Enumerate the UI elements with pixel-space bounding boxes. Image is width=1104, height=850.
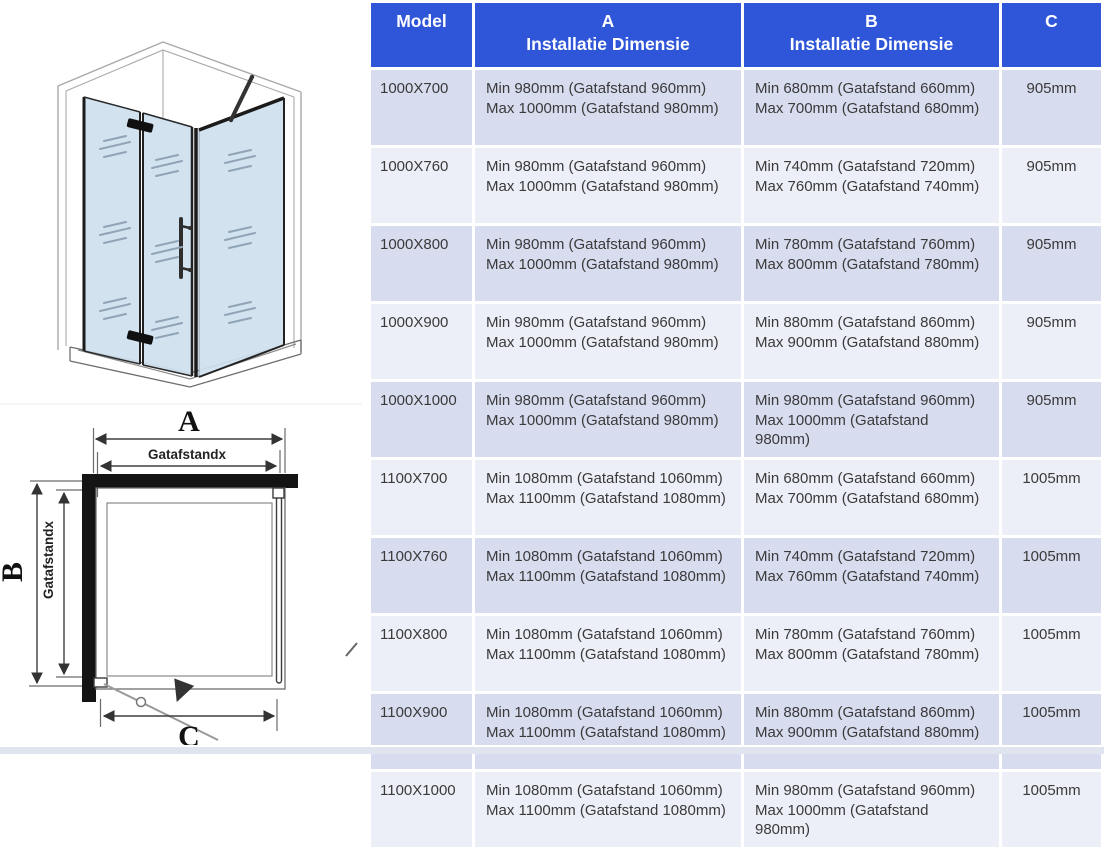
dim-line: Min 780mm (Gatafstand 760mm): [755, 235, 998, 255]
table-row: 1100X700 Min 1080mm (Gatafstand 1060mm) …: [371, 460, 1101, 535]
model-cell: 1100X1000: [371, 772, 472, 847]
header-b-sub: Installatie Dimensie: [746, 33, 997, 56]
shower-3d-view: [58, 42, 301, 387]
table-row: 1000X760 Min 980mm (Gatafstand 960mm) Ma…: [371, 148, 1101, 223]
shower-diagrams-svg: A Gatafstandx B: [0, 0, 368, 754]
header-a-sub: Installatie Dimensie: [477, 33, 739, 56]
dimension-ticks: [29, 428, 285, 731]
dim-a-cell: Min 980mm (Gatafstand 960mm) Max 1000mm …: [475, 382, 741, 457]
dim-a-cell: Min 980mm (Gatafstand 960mm) Max 1000mm …: [475, 148, 741, 223]
model-cell: 1000X760: [371, 148, 472, 223]
header-b-letter: B: [746, 10, 997, 33]
dim-b-cell: Min 740mm (Gatafstand 720mm) Max 760mm (…: [744, 538, 999, 613]
dim-b-cell: Min 780mm (Gatafstand 760mm) Max 800mm (…: [744, 616, 999, 691]
model-cell: 1000X900: [371, 304, 472, 379]
dim-a-cell: Min 1080mm (Gatafstand 1060mm) Max 1100m…: [475, 694, 741, 769]
dim-line: Min 980mm (Gatafstand 960mm): [486, 79, 740, 99]
product-spec-page: A Gatafstandx B: [0, 0, 1104, 754]
plan-side-panel: [277, 497, 282, 683]
page-bottom-strip: [0, 745, 1104, 754]
dim-line: Min 980mm (Gatafstand 960mm): [486, 391, 740, 411]
dim-line: Min 740mm (Gatafstand 720mm): [755, 157, 998, 177]
plan-wall-left: [82, 474, 96, 702]
dim-line: Max 1100mm (Gatafstand 1080mm): [486, 801, 740, 821]
model-cell: 1100X760: [371, 538, 472, 613]
table-row: 1100X900 Min 1080mm (Gatafstand 1060mm) …: [371, 694, 1101, 769]
dim-b-cell: Min 780mm (Gatafstand 760mm) Max 800mm (…: [744, 226, 999, 301]
dim-line: Min 880mm (Gatafstand 860mm): [755, 313, 998, 333]
plan-door-open: [104, 684, 218, 740]
dim-b-cell: Min 880mm (Gatafstand 860mm) Max 900mm (…: [744, 694, 999, 769]
dim-c-cell: 905mm: [1002, 304, 1101, 379]
diagram-pane: A Gatafstandx B: [0, 0, 368, 754]
table-row: 1000X1000 Min 980mm (Gatafstand 960mm) M…: [371, 382, 1101, 457]
model-cell: 1000X700: [371, 70, 472, 145]
glass-panel-side: [199, 98, 284, 377]
dim-line: Max 1000mm (Gatafstand 980mm): [486, 177, 740, 197]
dim-line: Max 1100mm (Gatafstand 1080mm): [486, 567, 740, 587]
model-cell: 1100X800: [371, 616, 472, 691]
dim-a-cell: Min 1080mm (Gatafstand 1060mm) Max 1100m…: [475, 460, 741, 535]
dim-line: Max 700mm (Gatafstand 680mm): [755, 99, 998, 119]
dim-c-cell: 905mm: [1002, 382, 1101, 457]
table-row: 1000X800 Min 980mm (Gatafstand 960mm) Ma…: [371, 226, 1101, 301]
table-row: 1000X700 Min 980mm (Gatafstand 960mm) Ma…: [371, 70, 1101, 145]
dim-c-cell: 905mm: [1002, 70, 1101, 145]
gap-v-label: Gatafstandx: [41, 521, 56, 600]
model-cell: 1100X700: [371, 460, 472, 535]
dim-b-cell: Min 980mm (Gatafstand 960mm) Max 1000mm …: [744, 772, 999, 847]
dim-line: Max 1000mm (Gatafstand: [755, 411, 998, 431]
dim-c-cell: 1005mm: [1002, 616, 1101, 691]
dim-line: Max 1000mm (Gatafstand 980mm): [486, 255, 740, 275]
dim-line: Max 760mm (Gatafstand 740mm): [755, 567, 998, 587]
table-row: 1100X1000 Min 1080mm (Gatafstand 1060mm)…: [371, 772, 1101, 847]
dim-c-cell: 1005mm: [1002, 772, 1101, 847]
table-header-row: Model A Installatie Dimensie B Installat…: [371, 3, 1101, 67]
door-swing-arrow: [178, 685, 185, 700]
dim-a-cell: Min 980mm (Gatafstand 960mm) Max 1000mm …: [475, 226, 741, 301]
dim-line: Max 900mm (Gatafstand 880mm): [755, 723, 998, 743]
dim-line: Max 1000mm (Gatafstand: [755, 801, 998, 821]
dim-b-cell: Min 740mm (Gatafstand 720mm) Max 760mm (…: [744, 148, 999, 223]
dim-line: Min 980mm (Gatafstand 960mm): [486, 235, 740, 255]
dim-b-label: B: [0, 562, 29, 582]
dim-c-cell: 905mm: [1002, 226, 1101, 301]
plan-door-knob: [137, 698, 146, 707]
dim-line: Min 980mm (Gatafstand 960mm): [486, 313, 740, 333]
plan-wall-top: [82, 474, 298, 488]
plan-side-panel-cap: [273, 488, 284, 498]
dim-line: Min 880mm (Gatafstand 860mm): [755, 703, 998, 723]
spec-table: Model A Installatie Dimensie B Installat…: [368, 0, 1104, 850]
dim-line: Max 760mm (Gatafstand 740mm): [755, 177, 998, 197]
dim-line: Max 1100mm (Gatafstand 1080mm): [486, 723, 740, 743]
table-row: 1100X760 Min 1080mm (Gatafstand 1060mm) …: [371, 538, 1101, 613]
model-cell: 1100X900: [371, 694, 472, 769]
dim-line: Min 980mm (Gatafstand 960mm): [755, 781, 998, 801]
dim-line: Min 680mm (Gatafstand 660mm): [755, 469, 998, 489]
dim-line: Min 980mm (Gatafstand 960mm): [755, 391, 998, 411]
header-b: B Installatie Dimensie: [744, 3, 999, 67]
dim-line: Max 800mm (Gatafstand 780mm): [755, 255, 998, 275]
dim-a-label: A: [178, 405, 200, 438]
dim-line: Max 1100mm (Gatafstand 1080mm): [486, 489, 740, 509]
glass-panel-fixed: [84, 97, 140, 364]
dim-line: Max 800mm (Gatafstand 780mm): [755, 645, 998, 665]
stray-tick-mark: [346, 643, 357, 656]
dim-line: Max 1100mm (Gatafstand 1080mm): [486, 645, 740, 665]
model-cell: 1000X800: [371, 226, 472, 301]
dim-line: Max 1000mm (Gatafstand 980mm): [486, 333, 740, 353]
gap-h-label: Gatafstandx: [148, 447, 227, 462]
dim-b-cell: Min 880mm (Gatafstand 860mm) Max 900mm (…: [744, 304, 999, 379]
dim-b-cell: Min 980mm (Gatafstand 960mm) Max 1000mm …: [744, 382, 999, 457]
plan-view: A Gatafstandx B: [0, 405, 357, 753]
table-row: 1100X800 Min 1080mm (Gatafstand 1060mm) …: [371, 616, 1101, 691]
header-a: A Installatie Dimensie: [475, 3, 741, 67]
dim-b-cell: Min 680mm (Gatafstand 660mm) Max 700mm (…: [744, 70, 999, 145]
dim-c-cell: 1005mm: [1002, 694, 1101, 769]
dim-b-cell: Min 680mm (Gatafstand 660mm) Max 700mm (…: [744, 460, 999, 535]
table-row: 1000X900 Min 980mm (Gatafstand 960mm) Ma…: [371, 304, 1101, 379]
dim-line: Max 1000mm (Gatafstand 980mm): [486, 99, 740, 119]
dim-line: Min 780mm (Gatafstand 760mm): [755, 625, 998, 645]
dim-line: Max 1000mm (Gatafstand 980mm): [486, 411, 740, 431]
dim-a-cell: Min 1080mm (Gatafstand 1060mm) Max 1100m…: [475, 772, 741, 847]
dim-a-cell: Min 980mm (Gatafstand 960mm) Max 1000mm …: [475, 70, 741, 145]
dim-line: Min 1080mm (Gatafstand 1060mm): [486, 469, 740, 489]
dim-a-cell: Min 1080mm (Gatafstand 1060mm) Max 1100m…: [475, 538, 741, 613]
header-a-letter: A: [477, 10, 739, 33]
dim-line: 980mm): [755, 430, 998, 450]
dim-a-cell: Min 980mm (Gatafstand 960mm) Max 1000mm …: [475, 304, 741, 379]
dim-line: Min 1080mm (Gatafstand 1060mm): [486, 781, 740, 801]
plan-door-hinge: [94, 678, 107, 687]
dim-line: Min 1080mm (Gatafstand 1060mm): [486, 547, 740, 567]
dim-line: 980mm): [755, 820, 998, 840]
dim-line: Min 680mm (Gatafstand 660mm): [755, 79, 998, 99]
header-model: Model: [371, 3, 472, 67]
dim-c-cell: 1005mm: [1002, 460, 1101, 535]
dim-a-cell: Min 1080mm (Gatafstand 1060mm) Max 1100m…: [475, 616, 741, 691]
dim-line: Min 740mm (Gatafstand 720mm): [755, 547, 998, 567]
dim-c-cell: 905mm: [1002, 148, 1101, 223]
plan-enclosure-outline: [96, 488, 285, 689]
plan-tray-outline: [107, 503, 272, 676]
dim-line: Min 1080mm (Gatafstand 1060mm): [486, 625, 740, 645]
spec-table-wrap: Model A Installatie Dimensie B Installat…: [368, 0, 1104, 754]
model-cell: 1000X1000: [371, 382, 472, 457]
header-c: C: [1002, 3, 1101, 67]
dim-line: Max 700mm (Gatafstand 680mm): [755, 489, 998, 509]
dim-line: Max 900mm (Gatafstand 880mm): [755, 333, 998, 353]
dim-c-cell: 1005mm: [1002, 538, 1101, 613]
dim-line: Min 1080mm (Gatafstand 1060mm): [486, 703, 740, 723]
dim-line: Min 980mm (Gatafstand 960mm): [486, 157, 740, 177]
